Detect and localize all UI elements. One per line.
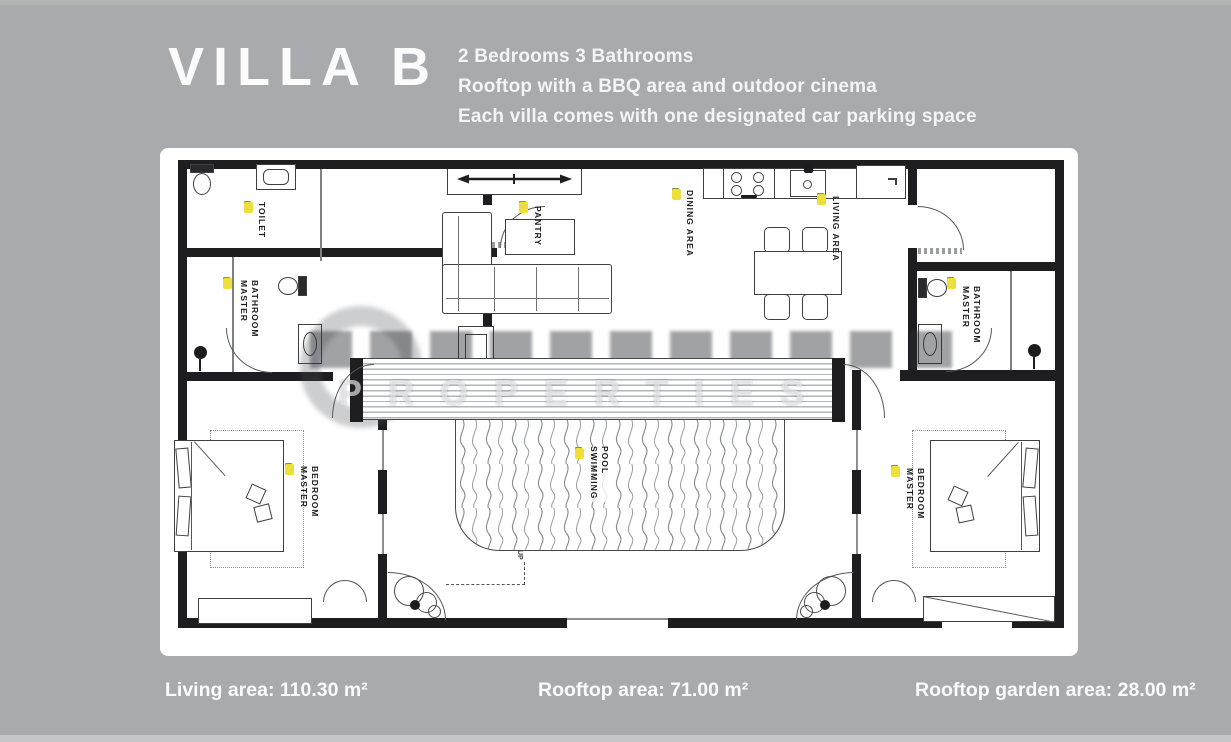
stat-rooftop-garden-area: Rooftop garden area: 28.00 m² (915, 679, 1196, 702)
stairs-up-label: UP (516, 550, 523, 560)
light-marker-left-bath (223, 278, 232, 289)
plant-right-small (800, 605, 813, 618)
burner-1 (731, 172, 742, 183)
partition-toilet (320, 169, 322, 261)
burner-2 (753, 172, 764, 183)
wall-right-room-upper (908, 160, 917, 205)
toilet-bowl-right-bath (927, 279, 947, 297)
wall-left (178, 160, 187, 628)
sliding-door-arrow-icon (457, 172, 572, 186)
feature-list: 2 Bedrooms 3 Bathrooms Rooftop with a BB… (458, 42, 977, 132)
sofa-cushion-line-1 (494, 267, 495, 311)
toilet-tank-right-bath (918, 278, 927, 298)
dining-chair-1 (764, 227, 790, 253)
fridge-mark-v (895, 178, 897, 185)
room-label-swimming-pool: SWIMMING POOL (588, 446, 610, 502)
floor-plan: TOILET MASTER BATHROOM PANTRY DINING ARE… (160, 148, 1078, 656)
door-arc-left-bedroom (323, 580, 367, 602)
sofa-cushion-line-3 (578, 267, 579, 311)
light-marker-pool (575, 448, 584, 459)
sofa-cushion-line-2 (536, 267, 537, 311)
room-label-master-bedroom-left: MASTER BEDROOM (298, 466, 320, 518)
plant-stem-right-bath (1033, 357, 1035, 369)
top-edge-strip (0, 0, 1231, 5)
room-label-master-bedroom-right: MASTER BEDROOM (904, 468, 926, 520)
wall-top (178, 160, 1064, 169)
door-arc-right-room (918, 206, 964, 250)
wardrobe-left (198, 598, 312, 624)
partition-bathroom-right (1010, 271, 1012, 370)
pillow-right-2 (1023, 496, 1039, 537)
plant-pot-left-bath (194, 346, 207, 359)
wall-bathroom-right-top (908, 262, 1064, 271)
kitchen-tap (804, 164, 813, 173)
dining-table (754, 251, 842, 295)
sofa-seat (442, 264, 612, 314)
room-label-master-bathroom-left: MASTER BATHROOM (238, 280, 260, 336)
feature-line-1: 2 Bedrooms 3 Bathrooms (458, 42, 977, 72)
villa-b-floorplan-page: { "colors": { "background": "#a7abad", "… (0, 0, 1231, 742)
stat-rooftop-area: Rooftop area: 71.00 m² (538, 679, 748, 702)
dining-chair-2 (802, 227, 828, 253)
cushion-right-2 (956, 505, 975, 524)
room-label-living-area: LIVING AREA (830, 196, 841, 274)
light-marker-right-bath (947, 278, 956, 289)
plant-right-blob (820, 600, 830, 610)
wall-right-wing-top (900, 370, 1064, 381)
room-label-pantry: PANTRY (532, 206, 543, 254)
feature-line-2: Rooftop with a BBQ area and outdoor cine… (458, 72, 977, 102)
light-marker-pantry (519, 202, 528, 213)
toilet-bowl (193, 173, 211, 195)
light-marker-living (817, 194, 826, 205)
watermark-text: PROPERTIES (338, 372, 830, 414)
dining-chair-4 (802, 294, 828, 320)
fridge (856, 165, 906, 199)
stairs-dash-vertical (524, 562, 525, 585)
pool-water-texture (456, 420, 785, 551)
plant-stem-left-bath (199, 359, 201, 371)
light-marker-right-bedroom (891, 466, 900, 477)
stairs-dash-horizontal (446, 584, 525, 585)
dining-chair-3 (764, 294, 790, 320)
room-label-dining-area: DINING AREA (684, 190, 695, 268)
toilet-tank-left-bath (298, 276, 307, 296)
stove-handle (741, 195, 757, 198)
swimming-pool (455, 420, 785, 551)
glass-door-left-2 (378, 514, 387, 554)
light-marker-toilet (244, 202, 253, 213)
bottom-edge-strip (0, 735, 1231, 742)
plant-left-blob (410, 600, 420, 610)
stat-living-area: Living area: 110.30 m² (165, 679, 368, 702)
feature-line-3: Each villa comes with one designated car… (458, 102, 977, 132)
window-bottom-left (567, 618, 668, 628)
toilet-bowl-left-bath (278, 277, 298, 295)
vanity-basin (263, 169, 289, 185)
plant-left-small (428, 605, 441, 618)
light-marker-left-bedroom (285, 464, 294, 475)
glass-door-right-1 (852, 430, 861, 470)
sofa-front-line (446, 298, 609, 299)
wall-right (1055, 160, 1064, 628)
light-marker-dining (672, 189, 681, 200)
door-arc-deck-right (843, 364, 885, 418)
glass-door-right-2 (852, 514, 861, 554)
sofa-back-line (458, 216, 459, 311)
toilet-tank (190, 164, 214, 173)
plant-pot-right-bath (1028, 344, 1041, 357)
glass-door-left-1 (378, 430, 387, 470)
kitchen-drain (803, 180, 812, 189)
room-label-toilet: TOILET (256, 202, 267, 252)
room-label-master-bathroom-right: MASTER BATHROOM (960, 286, 982, 342)
partition-bathroom-left (232, 257, 234, 372)
page-title: VILLA B (168, 36, 439, 98)
door-arc-right-bedroom (872, 580, 916, 602)
pillow-left-2 (176, 496, 192, 537)
